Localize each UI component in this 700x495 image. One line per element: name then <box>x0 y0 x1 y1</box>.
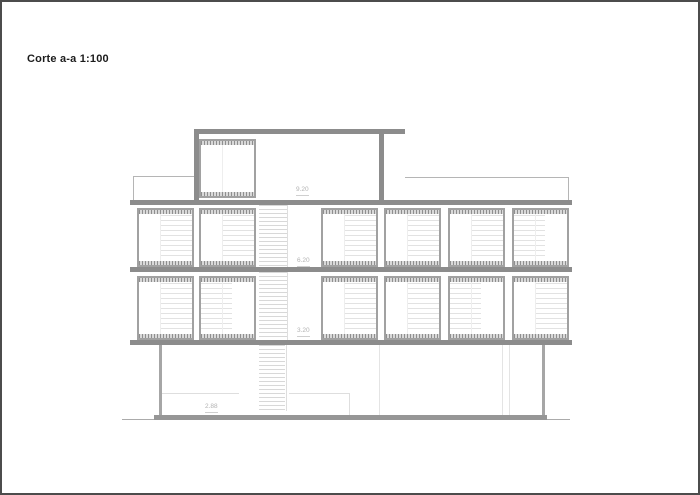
module-hatch-bottom <box>139 261 192 265</box>
module-hatch-top <box>139 278 192 282</box>
parapet-right-edge <box>568 177 569 200</box>
module-louver-lines <box>514 215 545 260</box>
module-hatch-bottom <box>386 261 439 265</box>
module-louver-lines <box>345 215 376 260</box>
module-center-line <box>344 214 345 261</box>
module-unit <box>448 276 505 340</box>
ground-partition-line <box>289 393 349 394</box>
first-floor-slab <box>130 340 572 345</box>
ground-right-wall <box>542 345 545 415</box>
ground-left-wall <box>159 345 162 415</box>
roof-slab <box>130 200 572 205</box>
module-louver-lines <box>223 215 254 260</box>
module-center-line <box>222 282 223 334</box>
module-louver-lines <box>345 283 376 333</box>
module-unit <box>321 276 378 340</box>
module-hatch-bottom <box>450 334 503 338</box>
module-unit <box>137 208 194 267</box>
penthouse-module <box>199 139 256 198</box>
module-center-line <box>160 282 161 334</box>
mid-floor-slab <box>130 267 572 272</box>
level-label-ground-height: 2.88 <box>205 404 218 413</box>
level-label-first: 3.20 <box>297 328 310 337</box>
module-unit <box>199 208 256 267</box>
module-unit <box>448 208 505 267</box>
ground-background-wall <box>502 345 503 415</box>
stair-flight-middle <box>259 272 287 340</box>
module-louver-lines <box>408 215 439 260</box>
module-louver-lines <box>201 283 232 333</box>
module-hatch-top <box>139 210 192 214</box>
module-center-line <box>535 214 536 261</box>
module-hatch-top <box>514 210 567 214</box>
module-hatch-top <box>386 210 439 214</box>
module-louver-lines <box>536 283 567 333</box>
module-louver-lines <box>450 283 481 333</box>
module-hatch-top <box>386 278 439 282</box>
ground-background-wall <box>509 345 510 415</box>
stair-stringer-upper <box>287 205 288 267</box>
module-center-line <box>222 214 223 261</box>
module-hatch-bottom <box>201 261 254 265</box>
module-center-line <box>160 214 161 261</box>
roof-beam <box>194 129 405 134</box>
level-label-roof: 9.20 <box>296 187 309 196</box>
parapet-left-line <box>133 176 194 177</box>
module-unit <box>384 276 441 340</box>
module-unit <box>199 276 256 340</box>
ground-background-wall <box>379 345 380 415</box>
module-center-line <box>407 214 408 261</box>
module-center-line <box>535 282 536 334</box>
module-hatch-top <box>323 278 376 282</box>
module-unit <box>384 208 441 267</box>
stair-stringer-middle <box>287 272 288 340</box>
module-hatch-bottom <box>201 334 254 338</box>
module-center-line <box>344 282 345 334</box>
module-hatch-top <box>323 210 376 214</box>
stair-stringer-ground <box>286 345 287 411</box>
module-center-line <box>471 214 472 261</box>
stair-flight-ground <box>259 345 285 411</box>
module-hatch-top <box>201 278 254 282</box>
parapet-right-line <box>405 177 569 178</box>
module-unit <box>321 208 378 267</box>
module-hatch-top <box>450 210 503 214</box>
module-louver-lines <box>408 283 439 333</box>
module-hatch-bottom <box>450 261 503 265</box>
building-section-drawing: 9.20 6.20 3.20 2.88 <box>2 2 698 493</box>
module-hatch-top <box>201 141 254 145</box>
module-center-line <box>222 145 223 192</box>
stair-flight-upper <box>259 205 287 267</box>
level-label-second: 6.20 <box>297 258 310 267</box>
penthouse-right-wall <box>379 134 384 200</box>
module-louver-lines <box>161 283 192 333</box>
ground-partition-edge <box>349 393 350 415</box>
module-center-line <box>407 282 408 334</box>
module-unit <box>137 276 194 340</box>
module-unit <box>512 208 569 267</box>
parapet-left-edge <box>133 176 134 200</box>
module-hatch-bottom <box>386 334 439 338</box>
module-center-line <box>471 282 472 334</box>
module-hatch-bottom <box>323 261 376 265</box>
module-hatch-bottom <box>514 261 567 265</box>
ground-slab <box>154 415 547 420</box>
module-hatch-top <box>514 278 567 282</box>
module-hatch-top <box>201 210 254 214</box>
drawing-sheet: Corte a-a 1:100 <box>0 0 700 495</box>
ground-partition-line <box>162 393 239 394</box>
module-hatch-bottom <box>201 192 254 196</box>
module-hatch-bottom <box>139 334 192 338</box>
module-hatch-top <box>450 278 503 282</box>
module-hatch-bottom <box>323 334 376 338</box>
module-louver-lines <box>472 215 503 260</box>
module-unit <box>512 276 569 340</box>
module-hatch-bottom <box>514 334 567 338</box>
module-louver-lines <box>161 215 192 260</box>
